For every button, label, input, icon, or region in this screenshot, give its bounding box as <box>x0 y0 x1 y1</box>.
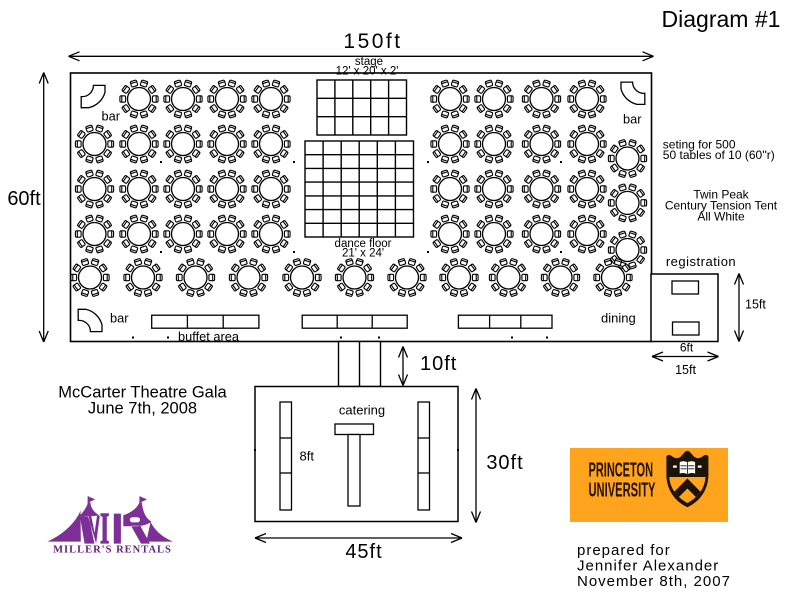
svg-text:catering: catering <box>339 403 385 418</box>
svg-text:15ft: 15ft <box>675 363 696 377</box>
svg-text:15ft: 15ft <box>745 298 766 312</box>
svg-text:UNIVERSITY: UNIVERSITY <box>589 479 656 502</box>
svg-text:10ft: 10ft <box>420 353 457 375</box>
svg-text:12' x 20' x 2': 12' x 20' x 2' <box>336 66 399 78</box>
svg-text:Diagram #1: Diagram #1 <box>662 6 781 32</box>
svg-text:MILLER'S RENTALS: MILLER'S RENTALS <box>53 544 172 555</box>
svg-text:50 tables of 10 (60''r): 50 tables of 10 (60''r) <box>663 148 775 162</box>
svg-text:150ft: 150ft <box>343 30 402 53</box>
svg-text:dining: dining <box>601 311 636 326</box>
svg-text:All White: All White <box>697 210 745 224</box>
svg-text:8ft: 8ft <box>300 449 315 464</box>
svg-text:21' x 24': 21' x 24' <box>342 248 384 260</box>
svg-text:June 7th, 2008: June 7th, 2008 <box>88 400 197 418</box>
svg-text:November 8th, 2007: November 8th, 2007 <box>577 573 731 590</box>
svg-text:6ft: 6ft <box>680 341 694 355</box>
svg-text:bar: bar <box>102 109 121 124</box>
svg-text:bar: bar <box>110 311 129 326</box>
svg-text:bar: bar <box>623 112 642 127</box>
svg-text:Jennifer Alexander: Jennifer Alexander <box>577 558 719 575</box>
svg-text:45ft: 45ft <box>345 541 382 563</box>
svg-text:buffet area: buffet area <box>178 329 240 344</box>
svg-text:registration: registration <box>666 254 736 269</box>
svg-text:30ft: 30ft <box>486 452 523 474</box>
svg-text:prepared for: prepared for <box>577 542 671 559</box>
svg-text:60ft: 60ft <box>7 188 41 210</box>
